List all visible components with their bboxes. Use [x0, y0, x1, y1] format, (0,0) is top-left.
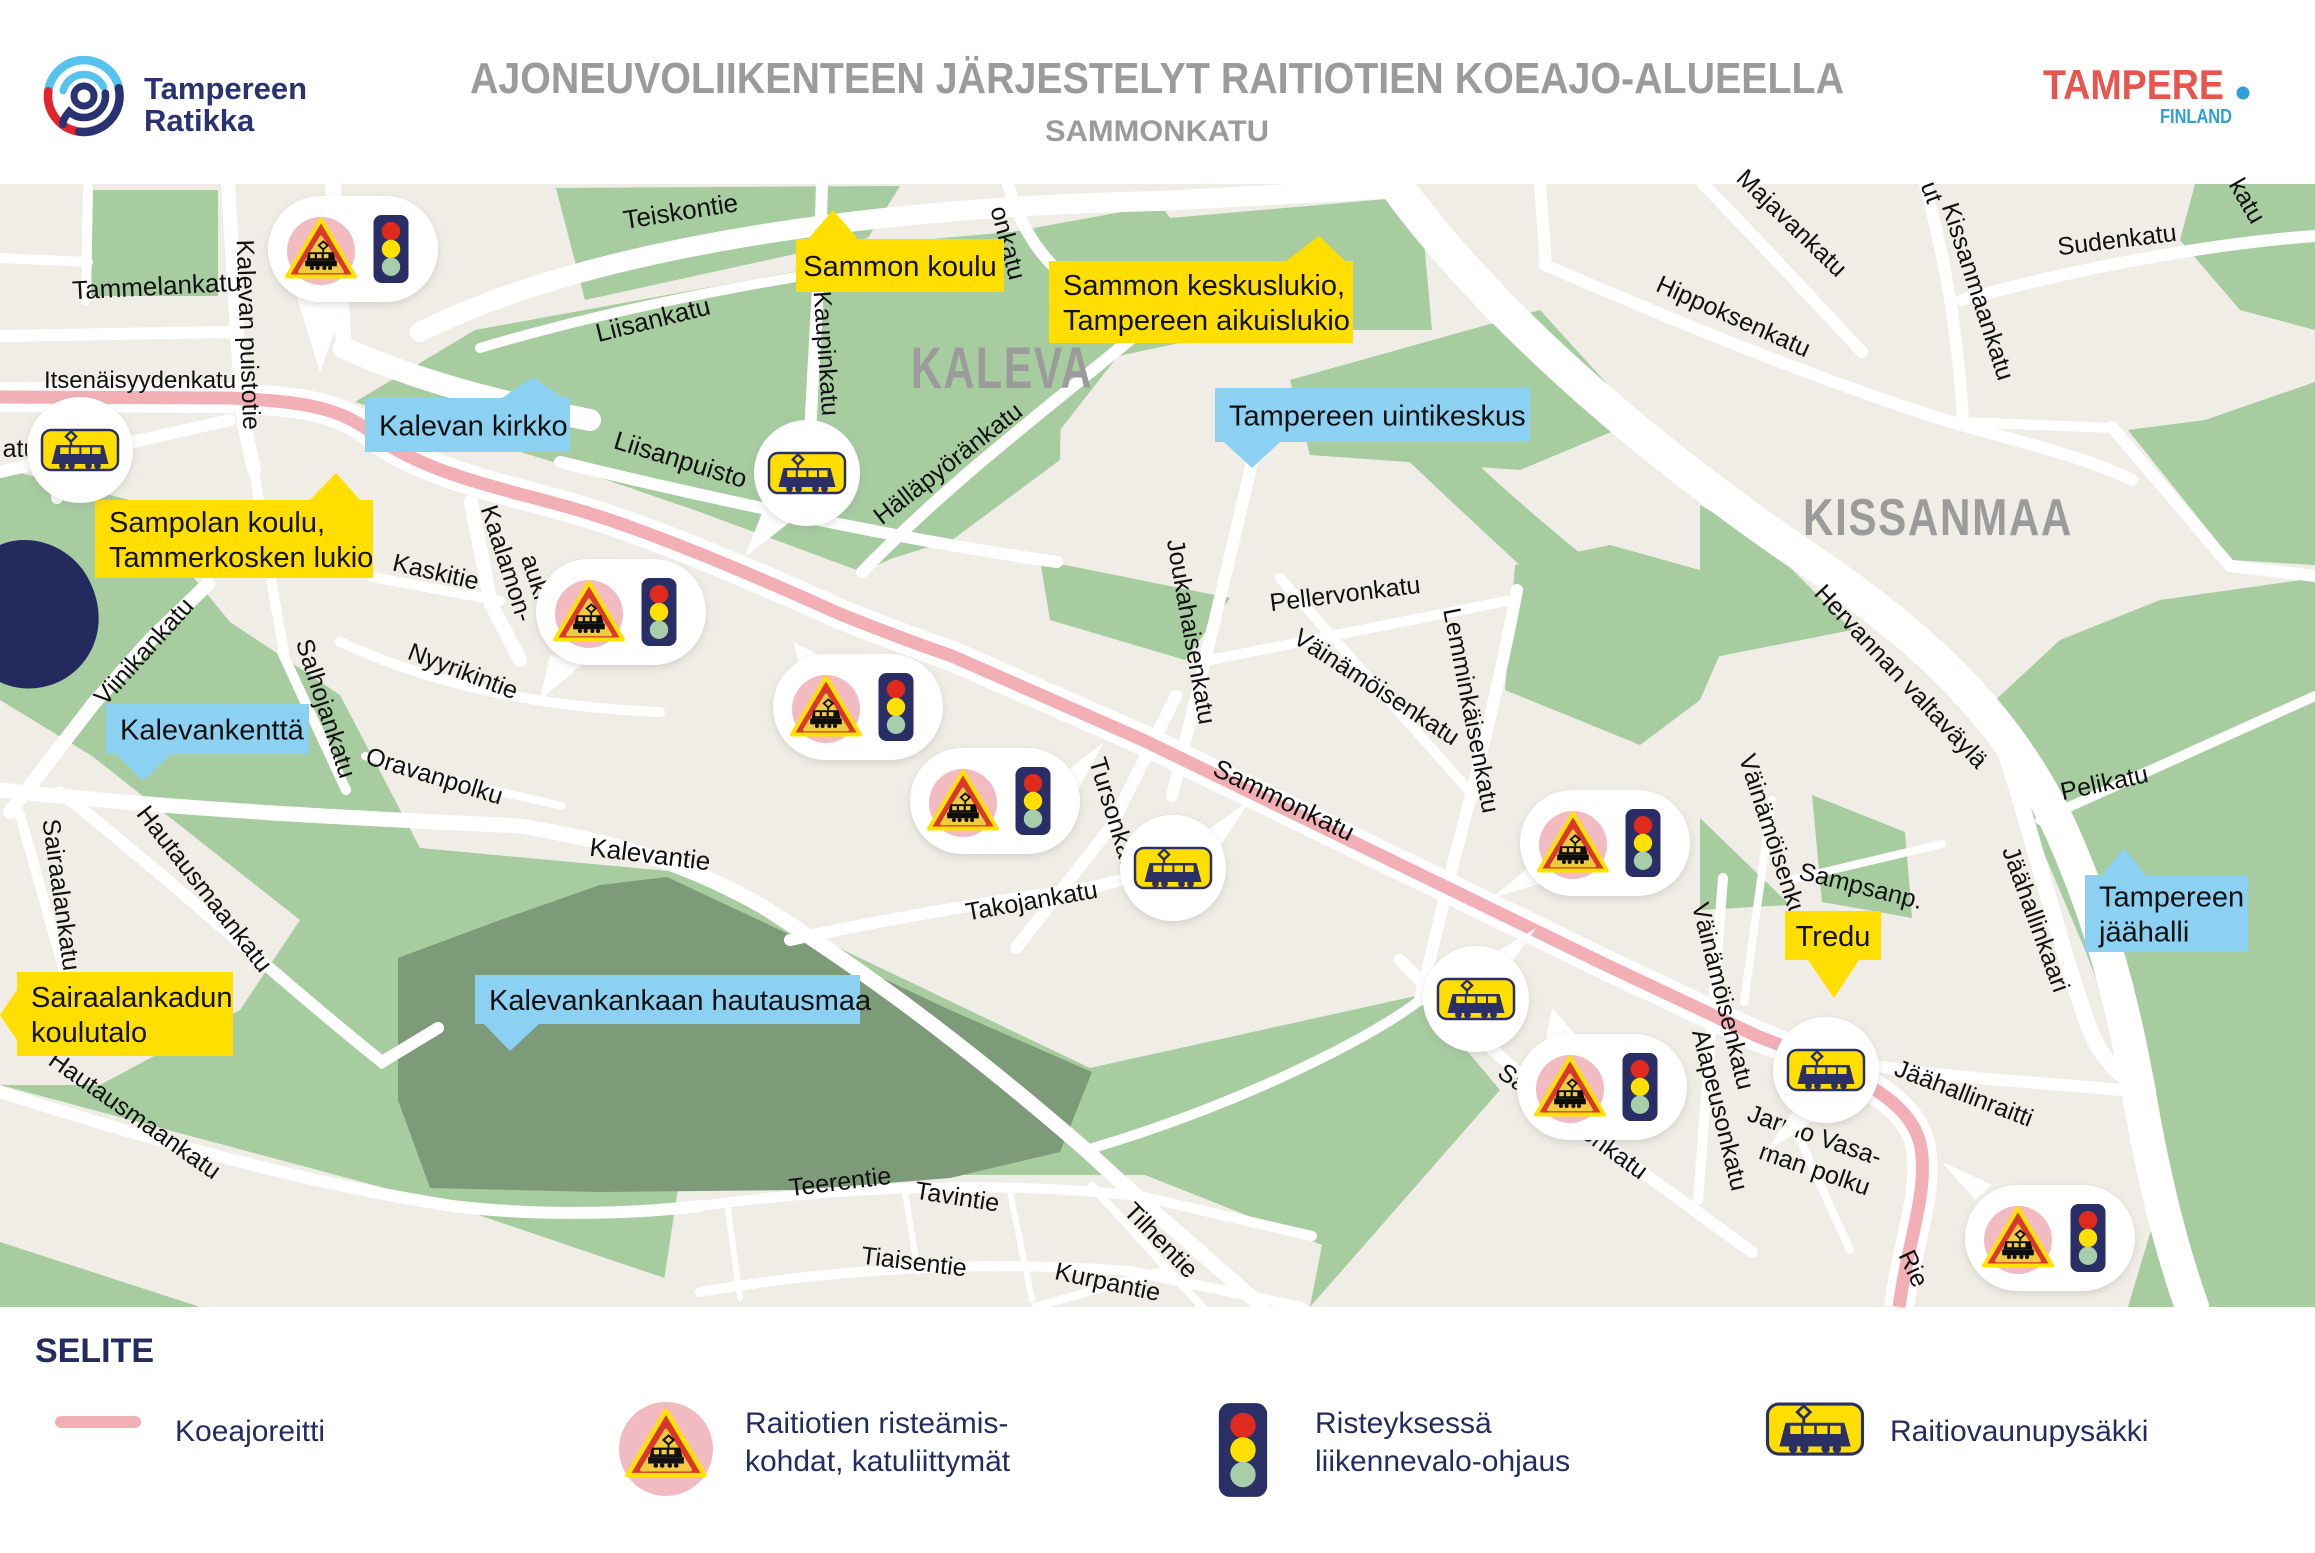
- svg-text:FINLAND: FINLAND: [2160, 106, 2232, 128]
- svg-text:Kalevankenttä: Kalevankenttä: [120, 714, 305, 746]
- svg-text:Sairaalankadun: Sairaalankadun: [31, 982, 233, 1014]
- svg-text:Tampereen: Tampereen: [144, 71, 307, 106]
- svg-text:Raitiovaunupysäkki: Raitiovaunupysäkki: [1890, 1415, 2148, 1448]
- svg-text:AJONEUVOLIIKENTEEN JÄRJESTELYT: AJONEUVOLIIKENTEEN JÄRJESTELYT RAITIOTIE…: [470, 54, 1844, 103]
- svg-text:Koeajoreitti: Koeajoreitti: [175, 1415, 325, 1448]
- svg-text:Tampereen uintikeskus: Tampereen uintikeskus: [1229, 400, 1526, 432]
- svg-text:Sammon koulu: Sammon koulu: [803, 251, 996, 283]
- svg-text:Tampereen aikuislukio: Tampereen aikuislukio: [1063, 305, 1350, 337]
- svg-text:jäähalli: jäähalli: [2098, 916, 2189, 948]
- svg-text:Kalevan kirkko: Kalevan kirkko: [379, 410, 568, 442]
- svg-text:SAMMONKATU: SAMMONKATU: [1045, 115, 1269, 148]
- svg-text:koulutalo: koulutalo: [31, 1017, 147, 1049]
- svg-text:KISSANMAA: KISSANMAA: [1803, 489, 2073, 547]
- svg-text:TAMPERE: TAMPERE: [2043, 61, 2224, 108]
- svg-text:Tampereen: Tampereen: [2099, 881, 2244, 913]
- svg-text:kohdat, katuliittymät: kohdat, katuliittymät: [745, 1445, 1011, 1478]
- svg-text:Tammerkosken lukio: Tammerkosken lukio: [109, 542, 373, 574]
- svg-text:KALEVA: KALEVA: [911, 336, 1093, 401]
- svg-text:Tredu: Tredu: [1796, 921, 1871, 953]
- svg-text:Sampolan koulu,: Sampolan koulu,: [109, 507, 325, 539]
- svg-text:SELITE: SELITE: [35, 1332, 154, 1370]
- svg-text:Risteyksessä: Risteyksessä: [1315, 1407, 1492, 1440]
- svg-text:Kalevankankaan hautausmaa: Kalevankankaan hautausmaa: [489, 985, 872, 1017]
- svg-text:Raitiotien risteämis-: Raitiotien risteämis-: [745, 1407, 1008, 1440]
- svg-text:Itsenäisyydenkatu: Itsenäisyydenkatu: [44, 367, 236, 394]
- svg-text:Ratikka: Ratikka: [144, 103, 255, 138]
- svg-text:Sammon keskuslukio,: Sammon keskuslukio,: [1063, 270, 1345, 302]
- svg-text:liikennevalo-ohjaus: liikennevalo-ohjaus: [1315, 1445, 1570, 1478]
